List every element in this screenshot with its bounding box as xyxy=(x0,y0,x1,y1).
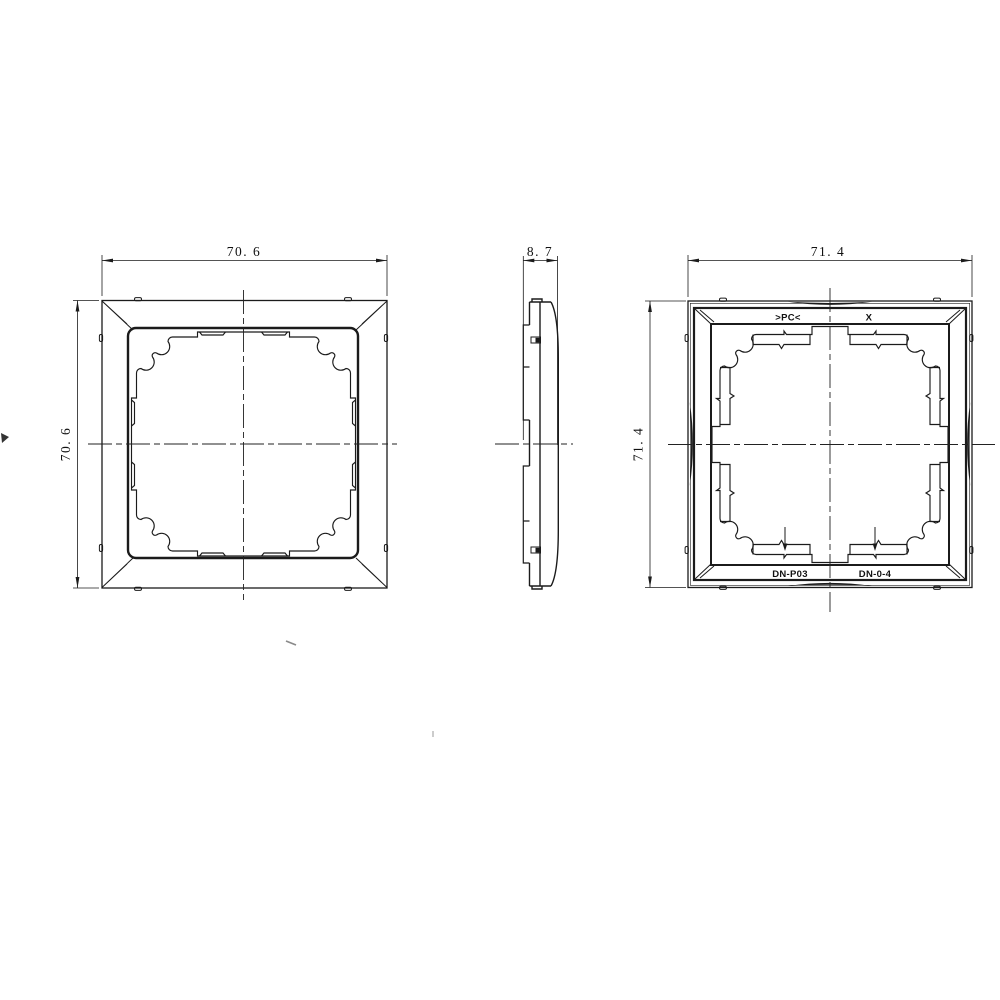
arrowhead xyxy=(688,259,699,263)
stray-smudge xyxy=(286,641,296,645)
part-number-left: DN-P03 xyxy=(772,569,808,580)
part-number-right: DN-0-4 xyxy=(859,569,892,580)
dim-text-back-width: 71. 4 xyxy=(811,244,846,259)
front-rounded-opening xyxy=(128,328,358,558)
back-view: >PC< X DN-P03 DN-0-4 xyxy=(668,288,995,612)
arrowhead xyxy=(648,577,652,588)
material-marking: >PC< xyxy=(775,313,801,324)
dim-text-back-height: 71. 4 xyxy=(631,427,646,462)
side-view xyxy=(495,299,573,589)
back-edge-bumps xyxy=(685,298,973,589)
arrowhead xyxy=(523,259,534,263)
arrowhead xyxy=(102,259,113,263)
front-view xyxy=(88,290,397,600)
arrowhead xyxy=(76,577,80,588)
dim-text-front-height: 70. 6 xyxy=(58,427,73,462)
dim-text-side-thickness: 8. 7 xyxy=(527,244,553,259)
arrowhead xyxy=(376,259,387,263)
dim-text-front-width: 70. 6 xyxy=(227,244,262,259)
front-centerlines xyxy=(88,290,397,600)
stray-marks xyxy=(1,433,433,737)
arrowhead xyxy=(961,259,972,263)
stray-arrow xyxy=(1,433,9,443)
dim-front-width: 70. 6 xyxy=(102,244,387,296)
back-centerlines xyxy=(668,288,995,612)
arrowhead xyxy=(648,301,652,312)
cavity-marking: X xyxy=(866,313,873,324)
arrowhead xyxy=(547,259,558,263)
drawing-sheet: >PC< X DN-P03 DN-0-4 70. 6 70. 6 xyxy=(0,0,1000,1000)
side-claw-windows xyxy=(531,337,541,553)
arrowhead xyxy=(76,301,80,312)
dimensions: 70. 6 70. 6 8. 7 71. 4 xyxy=(58,244,972,588)
technical-drawing: >PC< X DN-P03 DN-0-4 70. 6 70. 6 xyxy=(0,0,1000,1000)
